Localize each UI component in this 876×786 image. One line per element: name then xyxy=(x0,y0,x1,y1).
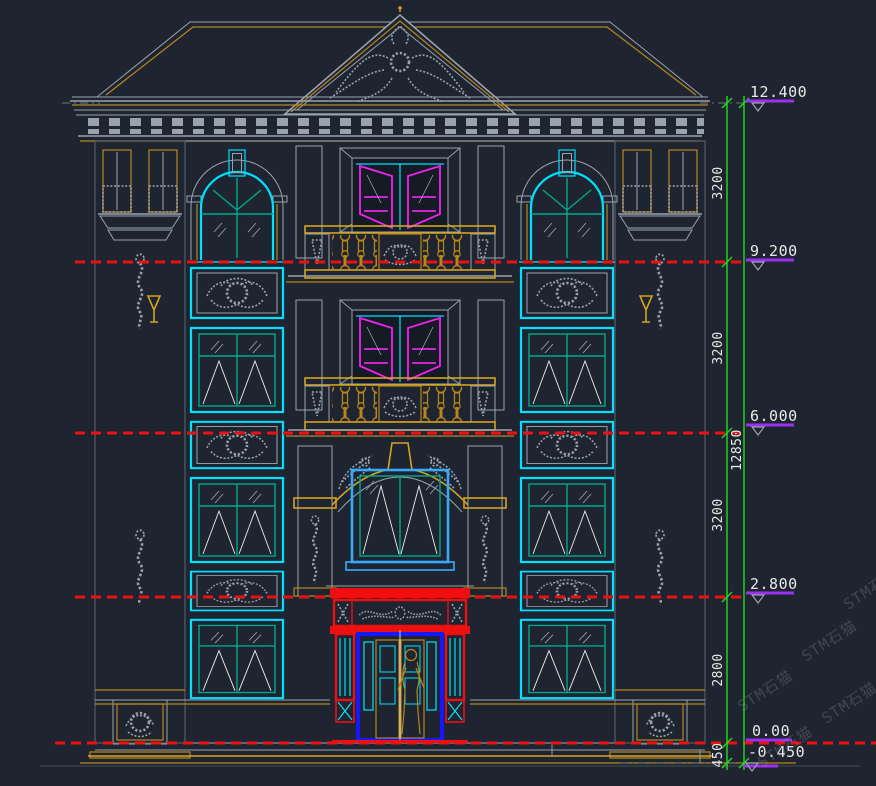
dim-3200-c: 3200 xyxy=(711,498,726,531)
watermark-text: STM石猫 xyxy=(840,564,876,613)
steps xyxy=(40,743,860,766)
cad-viewport: 3200 3200 3200 2800 450 12850 12.400 9.2… xyxy=(0,0,876,786)
center-floor2 xyxy=(286,300,514,436)
elevation-drawing-canvas: 3200 3200 3200 2800 450 12850 12.400 9.2… xyxy=(0,0,876,786)
entrance xyxy=(326,586,474,743)
corner-pier-left xyxy=(90,141,190,758)
corner-pier-right xyxy=(610,141,710,758)
level-marker-9200: 9.200 xyxy=(746,242,798,270)
level-marker-12400: 12.400 xyxy=(746,83,807,111)
dim-3200-a: 3200 xyxy=(711,166,726,199)
center-arch-bay xyxy=(294,443,506,596)
pier-drop-ornament xyxy=(136,254,144,329)
watermark-text: STM石猫 xyxy=(798,616,860,665)
dimension-system: 3200 3200 3200 2800 450 12850 12.400 9.2… xyxy=(711,83,807,771)
level-label: 6.000 xyxy=(750,407,798,425)
level-label: 2.800 xyxy=(750,575,798,593)
pier-drop-ornament-lower xyxy=(136,530,144,605)
level-dash-lines xyxy=(55,103,876,763)
dim-2800: 2800 xyxy=(711,653,726,686)
tower-left xyxy=(187,150,287,698)
dim-total-12850: 12850 xyxy=(730,429,745,471)
level-marker-6000: 6.000 xyxy=(746,407,798,435)
level-label: 12.400 xyxy=(750,83,807,101)
wall-lamp xyxy=(148,296,160,322)
entrance-frieze-ornament xyxy=(359,607,441,619)
watermark-text: STM石猫 xyxy=(818,678,876,727)
dim-450: 450 xyxy=(711,743,726,768)
level-marker-2800: 2.800 xyxy=(746,575,798,603)
tower-right xyxy=(517,150,617,698)
dim-3200-b: 3200 xyxy=(711,331,726,364)
level-label: 9.200 xyxy=(750,242,798,260)
